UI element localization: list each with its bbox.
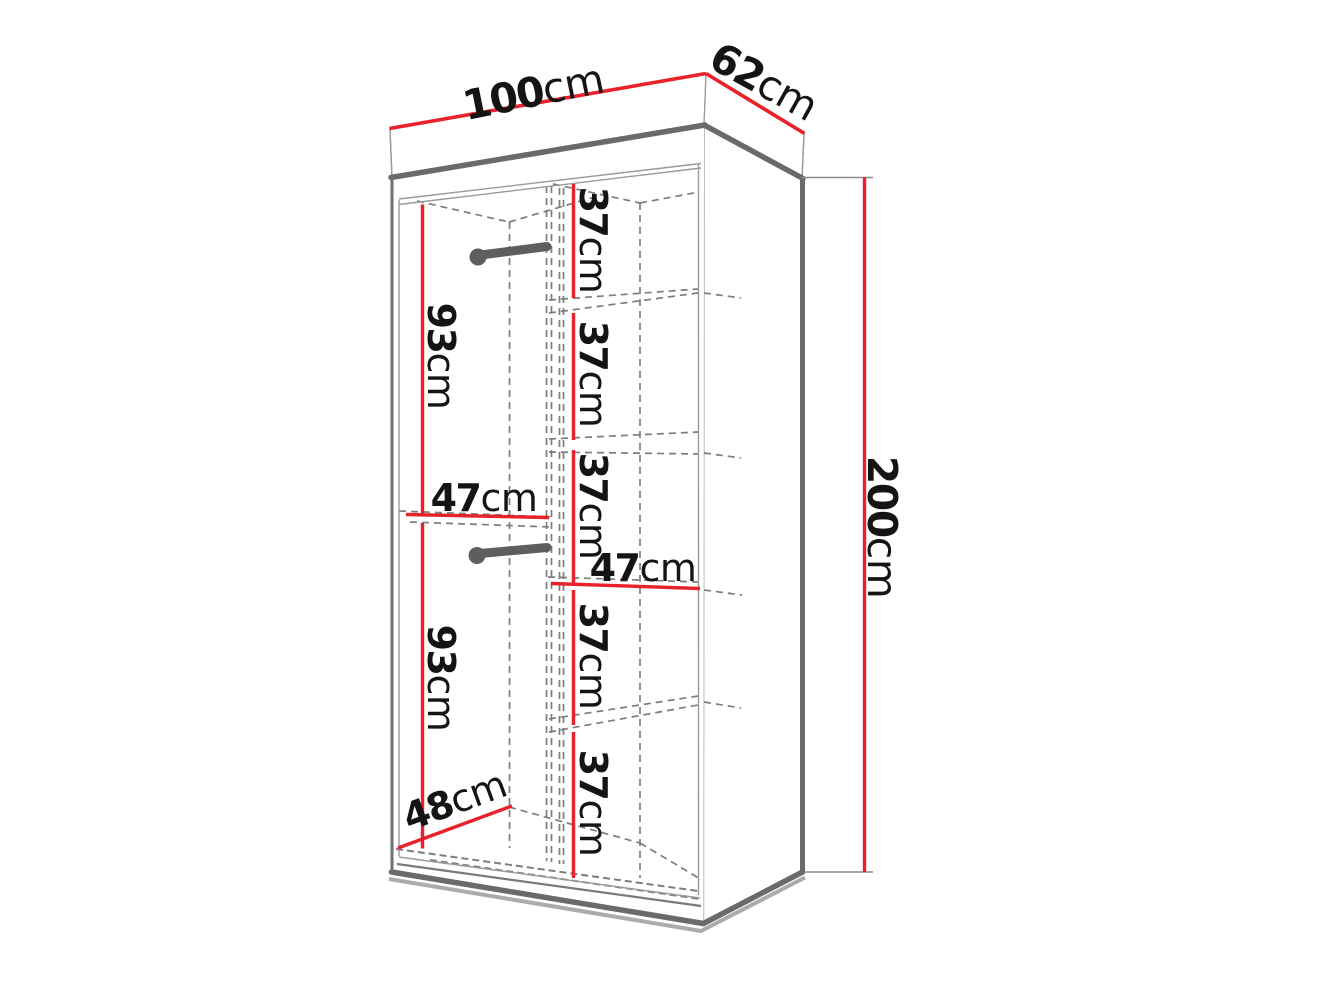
dimension-label-height: 200cm xyxy=(858,456,906,599)
dimension-label-shelf-5: 37cm xyxy=(571,750,615,857)
wardrobe-dimension-diagram: 100cm 62cm 200cm 93cm 93cm 47cm 47cm 48c… xyxy=(0,0,1321,991)
rod-end-cap xyxy=(470,249,487,266)
right-side-face xyxy=(704,126,803,924)
dimension-label-hanging-top: 93cm xyxy=(419,303,463,410)
dimension-label-shelf-2: 37cm xyxy=(571,321,615,428)
dimension-label-shelf-4: 37cm xyxy=(571,603,615,710)
dimension-label-hanging-width: 47cm xyxy=(431,476,538,520)
dimension-label-shelf-1: 37cm xyxy=(571,187,615,294)
dimension-label-hanging-bottom: 93cm xyxy=(419,625,463,732)
dimension-label-shelf-3: 37cm xyxy=(571,453,615,560)
diagram-canvas: 100cm 62cm 200cm 93cm 93cm 47cm 47cm 48c… xyxy=(0,0,1321,991)
rod-end-cap xyxy=(469,547,486,564)
rod-bar xyxy=(480,548,547,554)
